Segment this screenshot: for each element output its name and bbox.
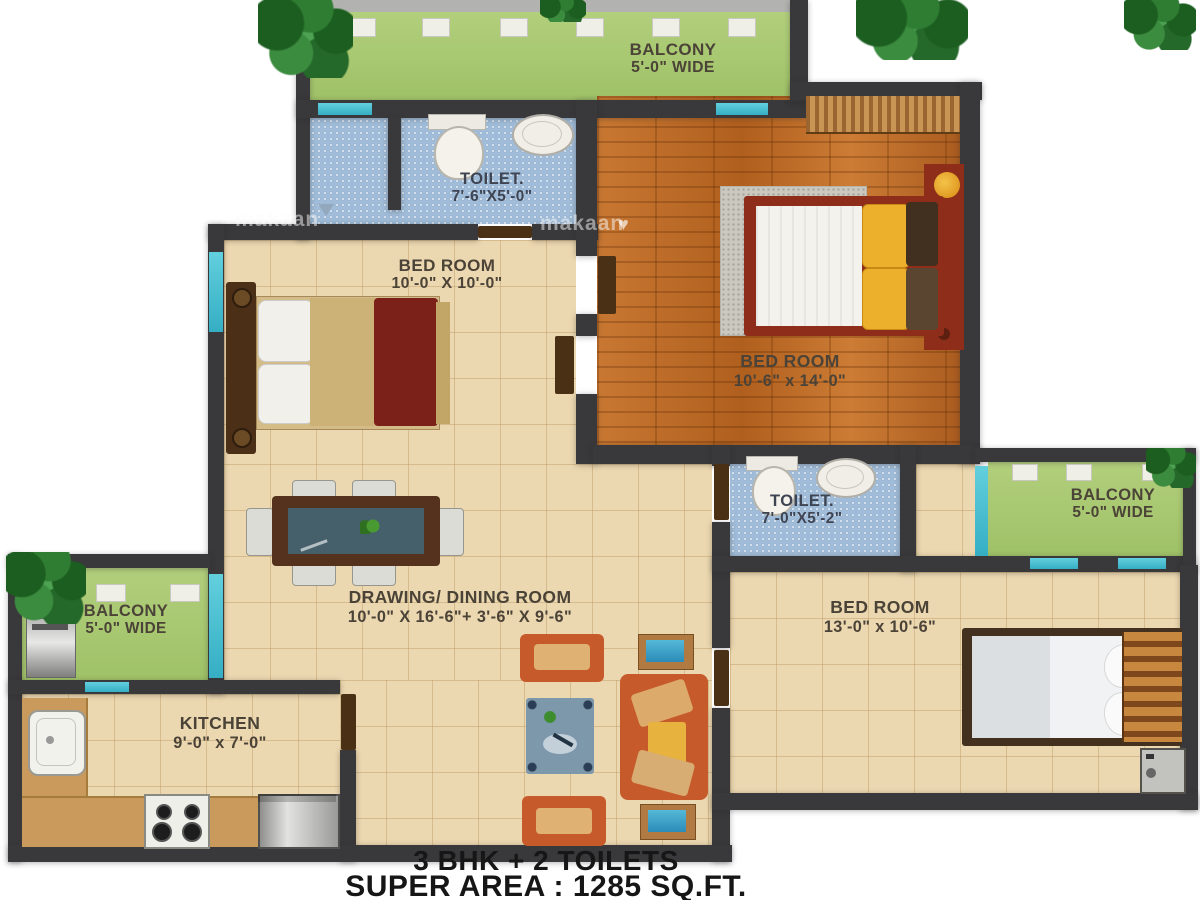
window [85, 682, 129, 692]
bed-mattress [972, 636, 1058, 738]
wall-segment [8, 680, 340, 694]
watermark: makaan [235, 208, 319, 232]
wall-toilet-partition [388, 118, 401, 210]
armchair-cushion [534, 644, 590, 670]
floor-plan: BALCONY 5'-0" WIDE TOILET. 7'-6"X5'-0" B… [0, 0, 1200, 900]
wall-segment [712, 708, 730, 862]
plant [1146, 448, 1196, 488]
window [209, 574, 223, 678]
room-name: BED ROOM [391, 256, 502, 275]
window [1118, 558, 1166, 569]
pillow-dark [906, 268, 938, 330]
washing-machine-slot [32, 624, 68, 630]
room-dims: 7'-0"X5'-2" [762, 510, 843, 527]
room-name: DRAWING/ DINING ROOM [348, 588, 572, 608]
super-area-text: SUPER AREA : 1285 SQ.FT. [0, 873, 1092, 900]
room-dims: 7'-6"X5'-0" [452, 188, 533, 205]
label-balcony-left: BALCONY 5'-0" WIDE [84, 602, 168, 638]
plant [540, 0, 586, 22]
room-name: KITCHEN [173, 714, 266, 734]
burner [152, 822, 172, 842]
window [1030, 558, 1078, 569]
stove [144, 794, 210, 849]
blanket [310, 298, 376, 426]
sink-drain [46, 736, 54, 744]
room-dims: 5'-0" WIDE [84, 620, 168, 637]
plant [856, 0, 968, 60]
footer-caption: 3 BHK + 2 TOILETS SUPER AREA : 1285 SQ.F… [0, 848, 1092, 900]
wall-segment [900, 445, 916, 572]
room-name: BED ROOM [734, 352, 846, 372]
pillow [862, 268, 910, 330]
rug-plant [538, 710, 562, 724]
room-dims: 9'-0" x 7'-0" [173, 734, 266, 752]
pillow-dark [906, 202, 938, 266]
label-toilet-right: TOILET. 7'-0"X5'-2" [762, 492, 843, 528]
pillow [258, 364, 314, 424]
headboard-knob [232, 428, 252, 448]
burner [182, 822, 202, 842]
headboard-striped [1122, 632, 1182, 742]
window [318, 103, 372, 115]
window [975, 466, 988, 556]
plant [1124, 0, 1196, 50]
label-toilet-top: TOILET. 7'-6"X5'-0" [452, 170, 533, 206]
room-name: BALCONY [630, 40, 717, 59]
floor-balcony-top [310, 12, 790, 100]
headboard-knob [232, 288, 252, 308]
lamp [934, 172, 960, 198]
room-name: TOILET. [762, 492, 843, 510]
door-bedroom-bottom [714, 650, 729, 706]
window [209, 252, 223, 332]
room-name: BED ROOM [824, 598, 936, 618]
wall-segment [712, 445, 730, 466]
appliance-detail [1146, 768, 1156, 778]
washbasin-inner [522, 121, 562, 147]
wall-segment [712, 793, 1198, 810]
room-dims: 5'-0" WIDE [1071, 504, 1155, 521]
table-plant [360, 518, 386, 534]
door-bedroom-left [555, 336, 574, 394]
washbasin-inner [826, 465, 864, 489]
bed-endboard [436, 302, 450, 424]
plant [6, 552, 86, 624]
armchair-cushion [536, 808, 592, 834]
railing-post [1012, 464, 1038, 481]
pillow [862, 204, 910, 268]
dining-chair [436, 508, 464, 556]
label-kitchen: KITCHEN 9'-0" x 7'-0" [173, 714, 266, 752]
label-bedroom-bottom: BED ROOM 13'-0" x 10'-6" [824, 598, 936, 636]
railing-post [422, 18, 450, 37]
bed-throw [374, 298, 438, 426]
label-bedroom-left: BED ROOM 10'-0" X 10'-0" [391, 256, 502, 293]
plant [258, 0, 353, 78]
railing-post [96, 584, 126, 602]
dining-chair [246, 508, 274, 556]
door-toilet-top [478, 226, 532, 238]
railing-post [728, 18, 756, 37]
side-table-top [648, 810, 686, 832]
label-balcony-right: BALCONY 5'-0" WIDE [1071, 486, 1155, 522]
room-name: BALCONY [84, 602, 168, 620]
burner [156, 804, 172, 820]
door-kitchen [341, 694, 356, 750]
room-dims: 10'-0" X 16'-6"+ 3'-6" X 9'-6" [348, 608, 572, 626]
label-bedroom-master: BED ROOM 10'-6" x 14'-0" [734, 352, 846, 390]
label-drawing-dining: DRAWING/ DINING ROOM 10'-0" X 16'-6"+ 3'… [348, 588, 572, 626]
door-bedroom-master [598, 256, 616, 314]
room-dims: 10'-6" x 14'-0" [734, 372, 846, 390]
appliance-detail [1146, 754, 1154, 759]
refrigerator [258, 794, 340, 849]
room-dims: 10'-0" X 10'-0" [391, 275, 502, 293]
label-balcony-top: BALCONY 5'-0" WIDE [630, 40, 717, 77]
wardrobe [806, 96, 960, 134]
pillow [258, 300, 314, 362]
room-dims: 5'-0" WIDE [630, 59, 717, 77]
railing-post [652, 18, 680, 37]
refrigerator-top [258, 794, 336, 802]
window [716, 103, 768, 115]
room-name: TOILET. [452, 170, 533, 188]
railing-post [170, 584, 200, 602]
railing-post [1066, 464, 1092, 481]
burner [184, 804, 200, 820]
watermark-heart-icon: ♥ [618, 214, 630, 235]
kitchen-sink-inner [36, 718, 76, 766]
watermark: makaan [540, 212, 624, 236]
side-table-top [646, 640, 684, 662]
room-dims: 13'-0" x 10'-6" [824, 618, 936, 636]
bed-mattress [756, 206, 862, 326]
door-toilet-right [714, 464, 729, 520]
room-name: BALCONY [1071, 486, 1155, 504]
wall-segment [576, 314, 597, 336]
railing-post [500, 18, 528, 37]
wall-segment [712, 522, 730, 648]
floor-passage [916, 464, 975, 556]
